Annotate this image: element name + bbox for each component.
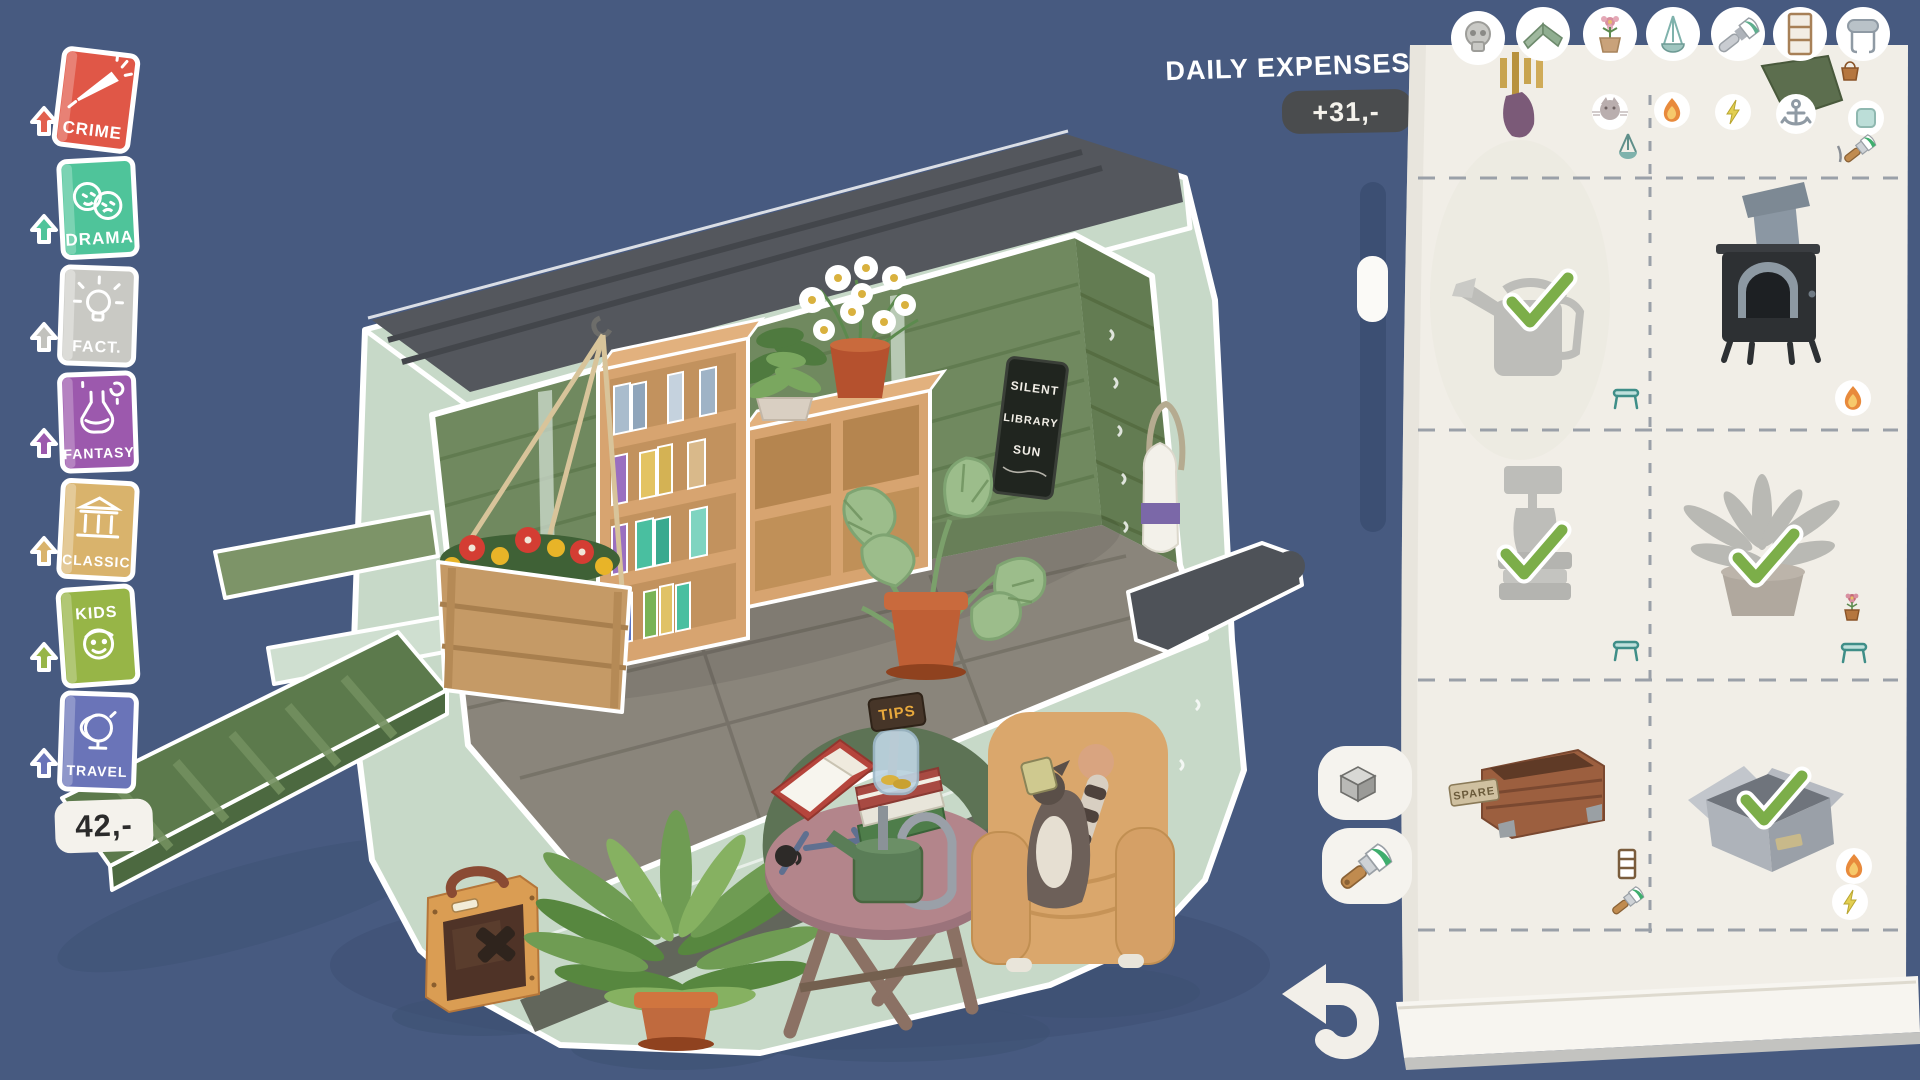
fire-badge-icon [1836,848,1872,884]
sidebar-book-classic[interactable]: CLASSIC [59,480,138,580]
fire-badge-icon [1654,92,1690,128]
sidebar-book-label: DRAMA [65,227,134,250]
cat-badge-icon [1592,94,1628,130]
sidebar-book-label: FACT. [72,338,122,357]
scrollbar-track[interactable] [1360,182,1386,532]
tab-paintbrush[interactable] [1711,7,1765,61]
shelf-badge-icon [1619,850,1635,878]
shelf-icon [1789,14,1811,54]
daily-expenses-value: +31,- [1312,96,1380,127]
lightning-badge-icon [1832,884,1868,920]
scrollbar-thumb[interactable] [1357,256,1388,322]
balance-badge: 42,- [54,798,154,853]
fire-badge-icon [1835,380,1871,416]
sidebar-book-fantasy[interactable]: FANTASY [59,373,136,472]
catalog-panel: SPARE [1396,7,1920,1070]
armchair[interactable] [972,712,1174,972]
tips-jar[interactable]: TIPS [868,692,926,794]
sidebar-book-kids[interactable]: KIDS [58,586,139,687]
tab-shelf[interactable] [1773,7,1827,61]
view-cube-button[interactable] [1318,746,1412,820]
paint-brush-button[interactable] [1322,828,1412,904]
sidebar-book-drama[interactable]: DRAMA [59,158,138,258]
anchor-badge-icon [1776,94,1816,134]
tab-skull[interactable] [1451,11,1505,65]
sidebar-book-label: FANTASY [63,444,135,462]
tab-wallpaper-roll[interactable] [1836,7,1890,61]
sidebar-book-fact[interactable]: FACT. [59,267,136,366]
game-screen: SILENT LIBRARY SUN [0,0,1920,1080]
tab-potted-flower[interactable] [1583,7,1637,61]
daily-expenses-badge: +31,- [1282,89,1413,134]
sidebar-book-travel[interactable]: TRAVEL [59,693,136,792]
sidebar-book-crime[interactable]: CRIME [53,48,138,152]
sidebar-book-label: TRAVEL [66,762,127,780]
lightning-badge-icon [1715,94,1751,130]
tab-hanging-lamp[interactable] [1646,7,1700,61]
game-canvas: SILENT LIBRARY SUN [0,0,1920,1080]
tab-awning[interactable] [1516,7,1570,61]
sidebar-book-label: KIDS [75,604,118,624]
note-badge-icon [1848,100,1884,136]
catalog-scrollbar[interactable] [1357,182,1388,532]
balance-value: 42,- [75,807,134,844]
